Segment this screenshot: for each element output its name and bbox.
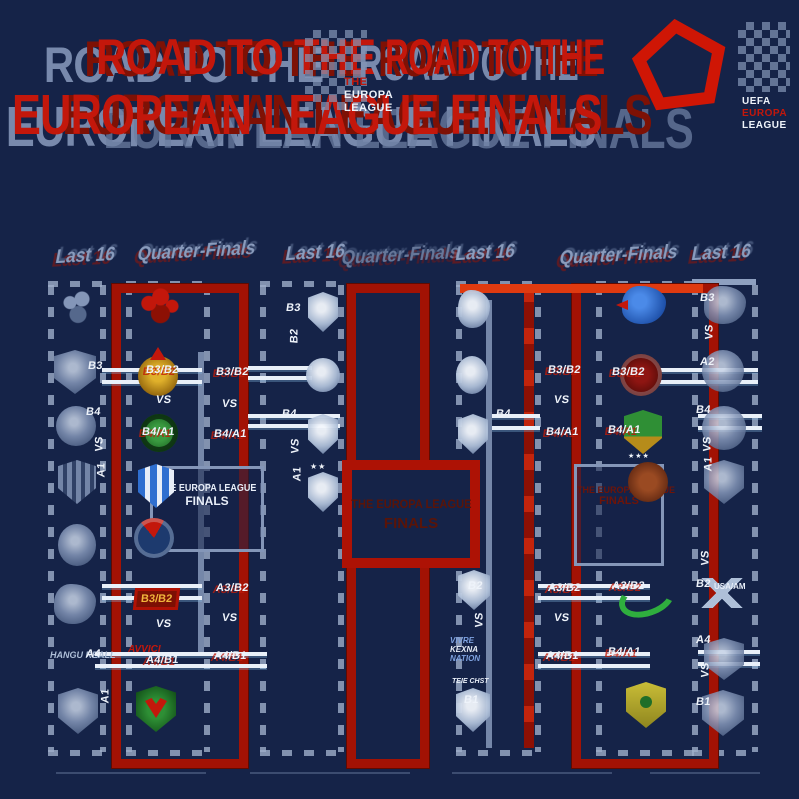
glitch-strip — [460, 284, 703, 293]
club-crest — [308, 414, 338, 454]
column-header-qf: Quarter-Finals — [557, 241, 679, 270]
qf-code: B4/A1 — [607, 424, 641, 436]
vs-label: VS — [94, 436, 106, 453]
qf-code: B4/A1 — [213, 428, 247, 440]
column-guide-top — [260, 281, 344, 287]
stars-icon: ★★★ — [628, 452, 650, 460]
tie-code: B2 — [288, 328, 300, 344]
wordmark-line: KEXNA — [450, 645, 480, 654]
footer-rule — [650, 772, 760, 774]
club-caption: USA/AM — [714, 582, 746, 591]
vs-label: VS — [700, 662, 712, 679]
connector-line — [95, 664, 267, 668]
column-guide-bottom — [456, 750, 541, 756]
qf-code: B3/B2 — [145, 364, 179, 376]
tie-code: A4 — [695, 634, 711, 646]
uefa-crest-wordmark: THE EUROPA LEAGUE — [344, 76, 393, 115]
wordmark-line: EUROPA — [742, 108, 787, 120]
tie-code: B3 — [87, 360, 103, 372]
tie-code: B2 — [467, 580, 483, 592]
vs-label: VS — [700, 550, 712, 567]
column-guide — [535, 285, 541, 752]
tie-code: A1 — [95, 462, 107, 478]
qf-code: A3/B2 — [547, 582, 581, 594]
club-crest — [308, 472, 338, 512]
wordmark-line: EUROPA — [344, 89, 393, 102]
column-header-last16: Last 16 — [283, 240, 347, 266]
club-crest — [458, 414, 488, 454]
club-crest — [54, 350, 96, 394]
tie-code: B3 — [285, 302, 301, 314]
tie-code: A4 — [85, 648, 101, 660]
tie-code: A1 — [702, 456, 714, 472]
vs-label: VS — [290, 438, 302, 455]
connector-line — [538, 664, 650, 668]
wordmark-line: THE — [344, 76, 393, 89]
vs-label: VS — [155, 618, 172, 630]
tie-code: A1 — [291, 466, 303, 482]
pentagon-icon — [628, 16, 732, 112]
vs-label: VS — [474, 612, 486, 629]
title-text: ROAD TO THE — [385, 29, 604, 85]
wordmark-line: VIVRE — [450, 636, 480, 645]
vs-label: VS — [155, 394, 172, 406]
tie-code: A2 — [699, 356, 715, 368]
wordmark-line: LEAGUE — [742, 120, 787, 132]
qf-code: A4/B1 — [213, 650, 247, 662]
vs-label: VS — [553, 394, 570, 406]
qf-code: B4/A1 — [141, 426, 175, 438]
club-crest-gold — [138, 356, 178, 396]
connector-line — [248, 366, 312, 370]
tie-code: B4 — [495, 408, 511, 420]
qf-code: B4/A1 — [545, 426, 579, 438]
club-crest-brown — [628, 462, 668, 502]
tie-code: B3 — [699, 292, 715, 304]
column-header-qf: Quarter-Finals — [339, 241, 461, 270]
club-crest — [306, 358, 340, 392]
qf-code-boxed: B3/B2 — [133, 588, 180, 610]
qf-code: B3/B2 — [547, 364, 581, 376]
wordmark-line: UEFA — [742, 96, 787, 108]
club-crest-navy-red — [134, 518, 174, 558]
fox-icon — [145, 698, 167, 718]
connector-line — [248, 376, 312, 380]
vs-label: VS — [704, 324, 716, 341]
qf-code: A3/B2 — [611, 580, 645, 592]
tie-code: B1 — [695, 696, 711, 708]
uefa-crest-wordmark-right: UEFA EUROPA LEAGUE — [742, 96, 787, 132]
column-guide-bottom — [260, 750, 344, 756]
wordmark-line: LEAGUE — [344, 102, 393, 115]
final-box-text: THE EUROPA LEAGUE — [351, 497, 471, 511]
tie-code: B1 — [463, 694, 479, 706]
emblem-icon — [640, 696, 652, 708]
tie-code: B4 — [695, 404, 711, 416]
club-crest — [308, 292, 338, 332]
title-line1-copy-b: ROAD TO THE ROAD TO THE ROAD TO THE — [385, 28, 604, 86]
uefa-crest-icon — [738, 22, 790, 92]
tie-code: B4 — [85, 406, 101, 418]
column-header-last16: Last 16 — [689, 240, 753, 266]
stars-icon: ★★ — [310, 462, 326, 471]
column-header-last16: Last 16 — [453, 240, 517, 266]
final-box-text: FINALS — [384, 515, 438, 532]
vs-label: VS — [221, 398, 238, 410]
column-guide — [752, 285, 758, 752]
tie-code: B2 — [695, 578, 711, 590]
column-guide — [48, 285, 54, 752]
club-crest — [58, 524, 96, 566]
column-guide-bottom — [48, 750, 106, 756]
glitch-bar — [524, 286, 534, 748]
footer-rule — [56, 772, 206, 774]
footer-rule — [452, 772, 612, 774]
vs-label: VS — [702, 436, 714, 453]
club-wordmark-blue: VIVRE KEXNA NATION — [450, 636, 480, 663]
qf-code: B4/A1 — [607, 646, 641, 658]
qf-code: B3/B2 — [215, 366, 249, 378]
qf-code: A4/B1 — [145, 654, 179, 666]
qf-code: A4/B1 — [545, 650, 579, 662]
vs-label: VS — [221, 612, 238, 624]
bracket-poster: ROAD TO THE ROAD TO THE ROAD TO THE ROAD… — [0, 0, 799, 799]
column-header-last16: Last 16 — [53, 243, 117, 269]
club-crest — [456, 356, 488, 394]
club-wordmark: HANGU REALL — [50, 650, 116, 660]
vs-label: VS — [553, 612, 570, 624]
connector-line — [492, 426, 540, 430]
qf-code: B3/B2 — [611, 366, 645, 378]
club-crest — [58, 688, 98, 734]
tie-code: B4 — [281, 408, 297, 420]
final-box: THE EUROPA LEAGUE FINALS — [342, 460, 480, 568]
wordmark-line: NATION — [450, 654, 480, 663]
club-crest — [54, 584, 96, 624]
qf-code: A3/B2 — [215, 582, 249, 594]
club-crest-caption: TEIE CHST — [452, 678, 489, 685]
club-crest — [58, 460, 96, 504]
column-guide-top — [48, 281, 106, 287]
club-crest-scribble — [58, 290, 98, 326]
tie-code: A1 — [99, 688, 111, 704]
footer-rule — [250, 772, 410, 774]
column-guide — [100, 285, 106, 752]
column-header-qf: Quarter-Finals — [135, 237, 257, 266]
